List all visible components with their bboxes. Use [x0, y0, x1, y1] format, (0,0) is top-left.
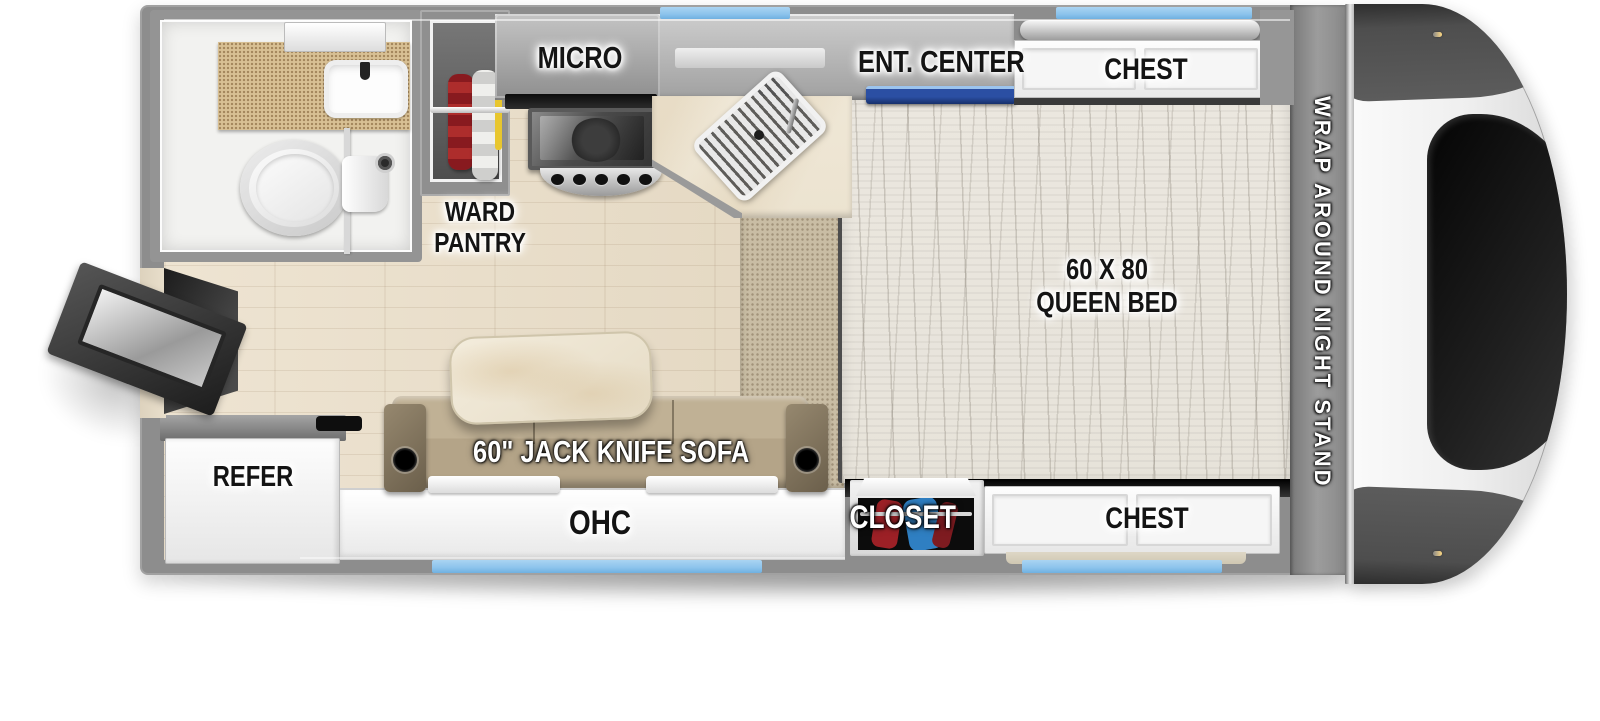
pantry-rod-icon: [430, 107, 510, 113]
range-knob-icon: [617, 174, 630, 185]
chest-top-handle: [1020, 20, 1260, 40]
wall-filler: [1260, 10, 1294, 105]
toilet-seat-icon: [256, 154, 334, 222]
sofa-label: 60" JACK KNIFE SOFA: [473, 434, 747, 470]
speaker-icon: [393, 448, 417, 472]
refrigerator-handle-icon: [316, 416, 362, 431]
queen-bed-label-line2: QUEEN BED: [1005, 287, 1210, 320]
range-knob-icon: [573, 174, 586, 185]
galley-shelf: [675, 48, 825, 68]
wall-highlight: [164, 19, 1290, 21]
ward-pantry-label-line2: PANTRY: [414, 227, 545, 258]
window-strip: [1056, 7, 1252, 19]
nose-left-edge: [1345, 4, 1354, 584]
front-window-icon: [1427, 114, 1567, 470]
refer-label: REFER: [196, 461, 311, 494]
closet-label: CLOSET: [850, 499, 955, 536]
hanging-clothes-red-icon: [448, 74, 474, 170]
chest-bottom-label: CHEST: [1077, 502, 1216, 536]
sofa-front-trim: [646, 476, 778, 493]
chest-top-label: CHEST: [1089, 53, 1204, 87]
wall-highlight: [300, 557, 845, 559]
kitchen-sink-drain-icon: [754, 130, 764, 140]
ent-center-label: ENT. CENTER: [858, 44, 1022, 80]
range-knob-icon: [551, 174, 564, 185]
tv-accent-strip: [866, 86, 1016, 104]
dinette-table: [449, 331, 654, 426]
marker-light-icon: [1433, 551, 1442, 556]
chest-top-shadow-line: [1014, 98, 1266, 105]
bathroom-cabinet: [284, 22, 386, 52]
closet-ledge: [856, 478, 976, 496]
range-knob-icon: [595, 174, 608, 185]
queen-bed-label-line1: 60 X 80: [1005, 254, 1210, 287]
bathroom-faucet-icon: [360, 62, 370, 80]
ward-pantry-label: WARD PANTRY: [414, 196, 545, 258]
rv-floorplan-canvas: MICRO ENT. CENTER CHEST WARD PANTRY 60 X…: [0, 0, 1600, 721]
window-strip: [432, 560, 762, 573]
window-strip: [660, 7, 790, 19]
microwave-icon: [505, 94, 657, 109]
micro-label: MICRO: [514, 40, 645, 76]
night-stand-label: WRAP AROUND NIGHT STAND: [1293, 72, 1335, 512]
range-burner-icon: [570, 118, 622, 162]
speaker-icon: [795, 448, 819, 472]
refrigerator: [165, 438, 340, 564]
sofa-front-trim: [428, 476, 560, 493]
queen-bed-label: 60 X 80 QUEEN BED: [1005, 254, 1210, 320]
ward-pantry-label-line1: WARD: [414, 196, 545, 227]
front-nose-cap: [1345, 4, 1567, 584]
marker-light-icon: [1433, 32, 1442, 37]
nose-bottom-band: [1345, 486, 1567, 584]
shower-drain-icon: [378, 156, 392, 170]
range-knob-icon: [639, 174, 652, 185]
window-strip: [1022, 560, 1222, 573]
ohc-label: OHC: [547, 504, 654, 543]
nose-top-band: [1345, 4, 1567, 102]
